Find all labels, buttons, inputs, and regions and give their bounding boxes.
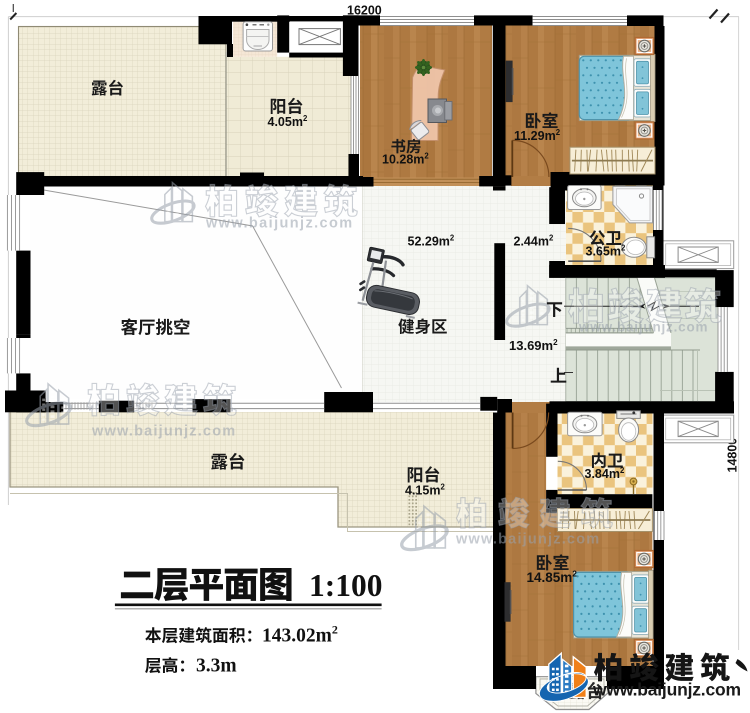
svg-text:3.3m: 3.3m: [196, 656, 237, 677]
svg-text:52.29m2: 52.29m2: [408, 234, 455, 249]
svg-text:3.84m2: 3.84m2: [585, 466, 625, 481]
svg-text:10.28m2: 10.28m2: [382, 152, 429, 167]
svg-text:www.baijunjz.com: www.baijunjz.com: [455, 532, 600, 548]
svg-text:14.85m2: 14.85m2: [527, 569, 578, 585]
svg-text:www.baijunjz.com: www.baijunjz.com: [578, 320, 708, 335]
svg-text:1:100: 1:100: [309, 568, 383, 603]
svg-text:2.44m2: 2.44m2: [514, 234, 554, 249]
svg-text:www.baijunjz.com: www.baijunjz.com: [205, 216, 354, 232]
svg-text:www.baijunjz.com: www.baijunjz.com: [592, 680, 741, 700]
svg-text:11.29m2: 11.29m2: [514, 128, 561, 143]
svg-text:3.65m2: 3.65m2: [586, 244, 626, 259]
svg-text:143.02m2: 143.02m2: [262, 623, 338, 647]
svg-text:4.05m2: 4.05m2: [268, 114, 308, 129]
svg-text:13.69m2: 13.69m2: [509, 338, 558, 353]
svg-text:www.baijunjz.com: www.baijunjz.com: [91, 424, 236, 440]
svg-text:4.15m2: 4.15m2: [405, 483, 445, 498]
